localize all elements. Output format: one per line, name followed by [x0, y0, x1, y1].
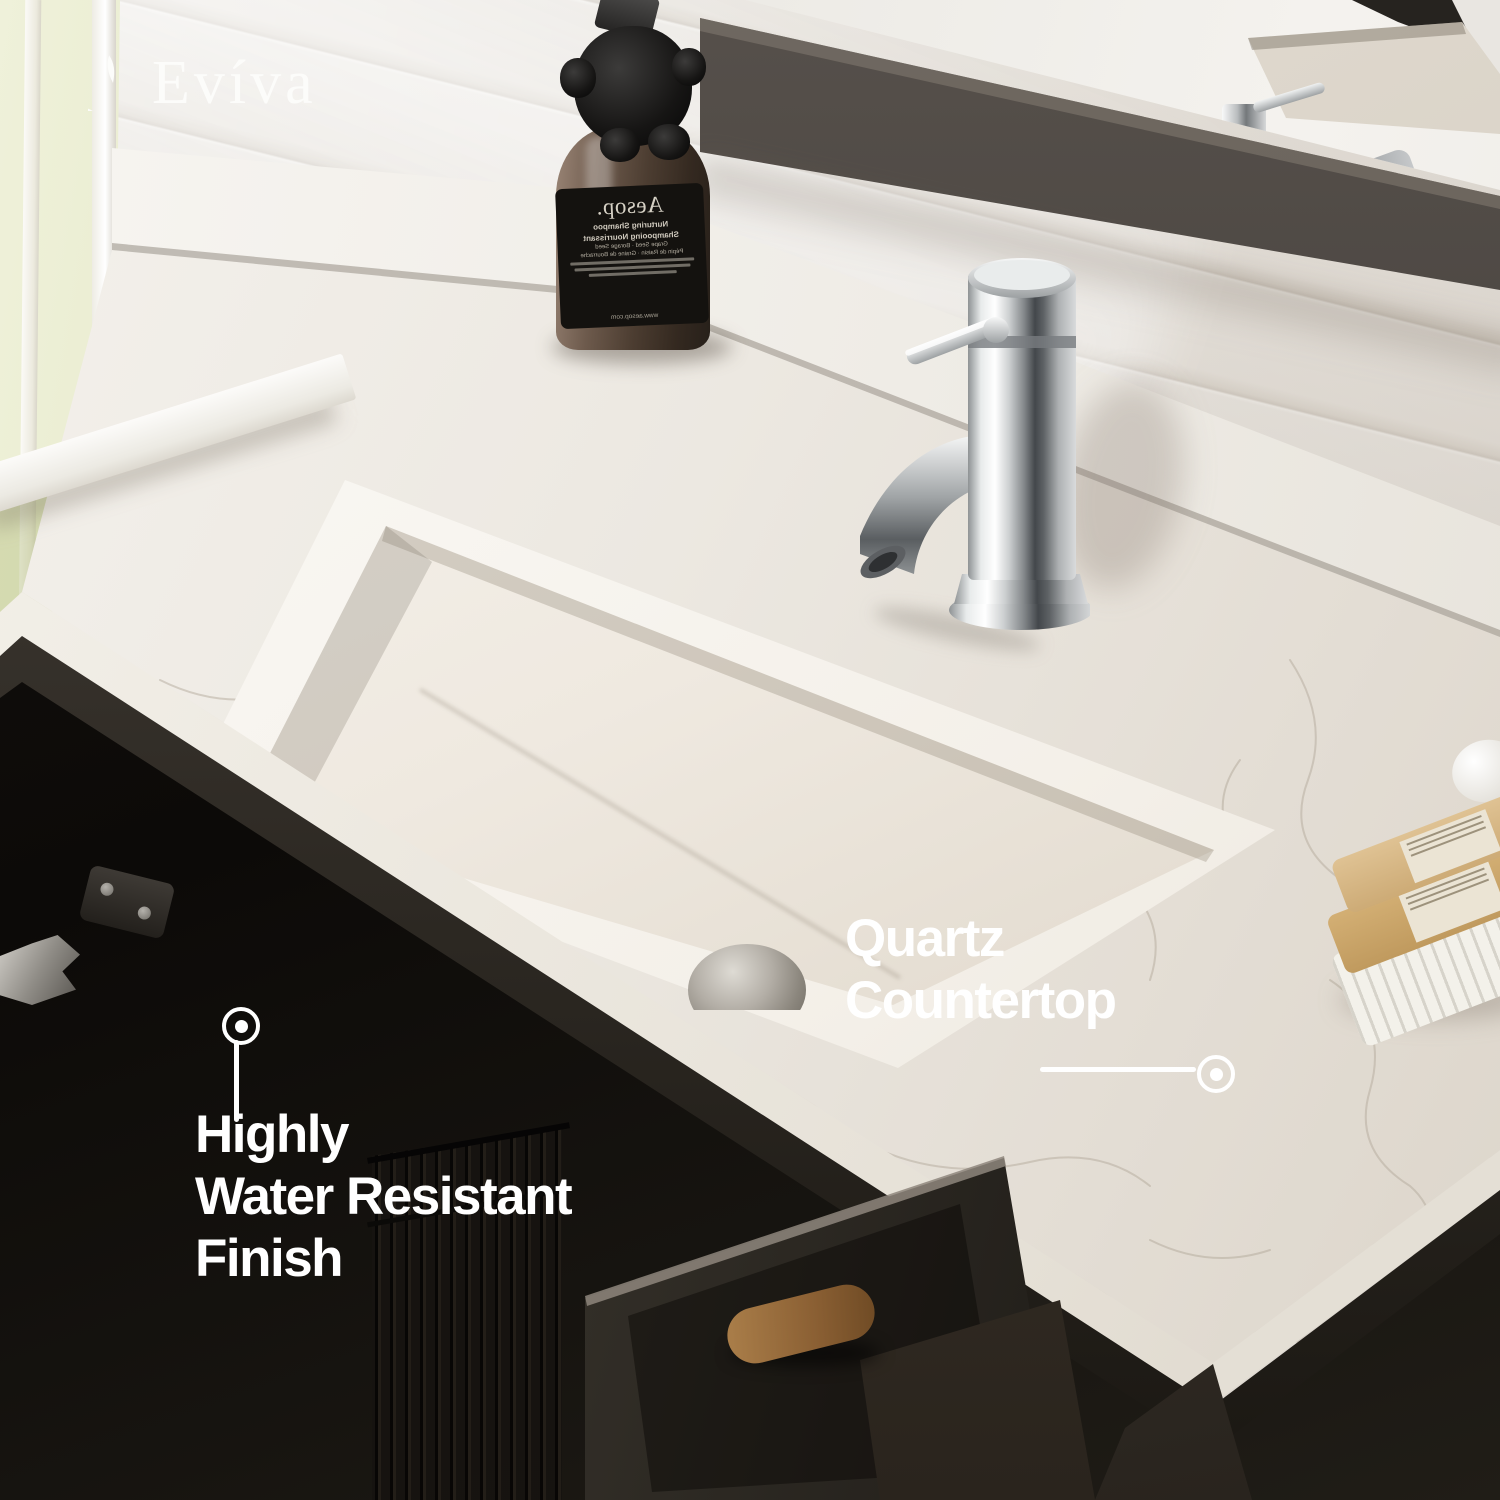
quartz-line1: Quartz	[845, 908, 1116, 970]
callout-marker-quartz	[1197, 1055, 1235, 1093]
finish-line1: Highly	[195, 1104, 571, 1166]
hinge-screw	[99, 881, 115, 897]
hinge-screw	[136, 905, 152, 921]
chrome-faucet	[826, 244, 1090, 640]
finish-line2: Water Resistant	[195, 1166, 571, 1228]
label-text-line	[588, 270, 677, 277]
bottle-scrubber-fuzz	[600, 128, 640, 162]
bottle-label: Aesop. Nurturing Shampoo Shampooing Nour…	[555, 183, 709, 329]
bottle-label-mirrored-text: Aesop. Nurturing Shampoo Shampooing Nour…	[555, 183, 709, 329]
callout-dot	[1210, 1068, 1223, 1081]
bottle-brand: Aesop.	[596, 192, 665, 221]
product-photo-eviva-vanity: Aesop. Nurturing Shampoo Shampooing Nour…	[0, 0, 1500, 1500]
drain	[688, 944, 806, 1010]
eviva-logo-text: Evíva	[152, 52, 317, 114]
bottle-product-en: Nurturing Shampoo	[593, 219, 668, 231]
faucet-handle-joint	[983, 317, 1009, 343]
bottle-website: www.aesop.com	[611, 312, 659, 321]
eviva-sparkle-icon	[88, 55, 138, 111]
callout-line-quartz	[1040, 1067, 1196, 1072]
finish-line3: Finish	[195, 1228, 571, 1290]
faucet-body	[968, 272, 1076, 580]
finish-callout-label: Highly Water Resistant Finish	[195, 1104, 571, 1290]
drain-dome	[688, 944, 806, 1010]
bottle-scrubber-fuzz	[560, 58, 596, 98]
faucet-cap-top	[974, 260, 1070, 290]
bottle-scrubber-fuzz	[672, 48, 706, 86]
callout-marker-finish	[222, 1007, 260, 1045]
quartz-callout-label: Quartz Countertop	[845, 908, 1116, 1032]
callout-dot	[235, 1020, 248, 1033]
quartz-line2: Countertop	[845, 970, 1116, 1032]
eviva-logo: Evíva	[88, 52, 317, 114]
bottle-scrubber-fuzz	[648, 124, 690, 160]
